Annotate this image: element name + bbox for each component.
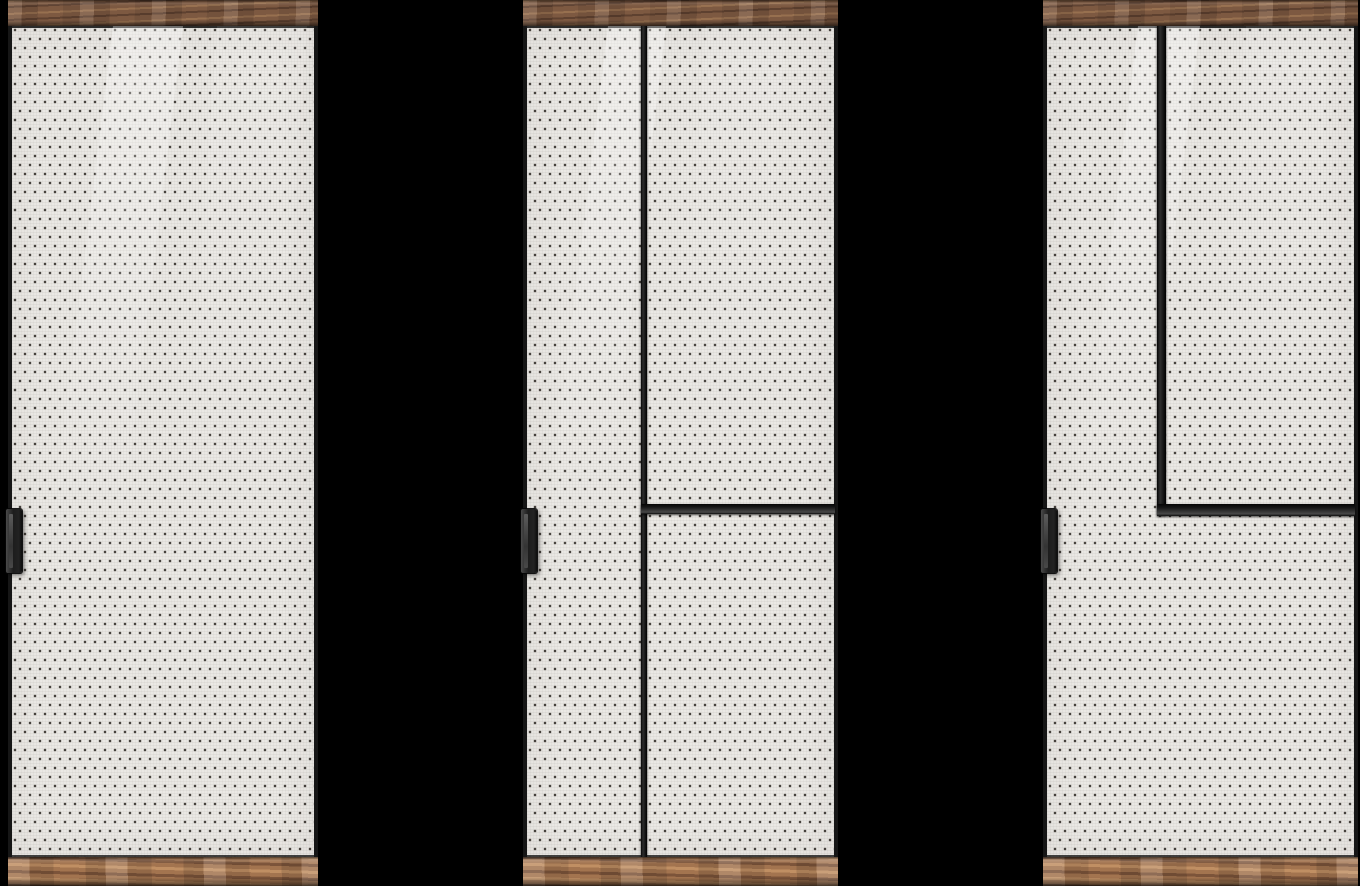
door-variant-3 bbox=[1043, 0, 1358, 886]
render-canvas bbox=[0, 0, 1360, 886]
door1-reflection-soft bbox=[159, 26, 307, 857]
door2-glass-panel bbox=[523, 26, 838, 857]
door3-bottom-wood-rail bbox=[1043, 857, 1358, 886]
door1-glass-panel bbox=[8, 26, 318, 857]
door2-vertical-divider bbox=[641, 26, 647, 857]
door2-top-wood-rail bbox=[523, 0, 838, 26]
door3-top-wood-rail bbox=[1043, 0, 1358, 26]
door3-vertical-divider bbox=[1157, 26, 1166, 516]
door3-horizontal-rail bbox=[1157, 504, 1355, 516]
door2-bottom-wood-rail bbox=[523, 857, 838, 886]
door3-reflection-streak bbox=[1043, 26, 1200, 857]
door3-handle bbox=[1041, 509, 1057, 573]
door-variant-1 bbox=[8, 0, 318, 886]
door1-reflection-streak bbox=[11, 26, 183, 857]
door2-reflection-soft bbox=[648, 26, 786, 857]
door2-horizontal-rail bbox=[641, 504, 835, 514]
door3-glass-panel bbox=[1043, 26, 1358, 857]
door2-handle bbox=[521, 509, 537, 573]
door1-top-wood-rail bbox=[8, 0, 318, 26]
door1-handle bbox=[6, 509, 22, 573]
door-variant-2 bbox=[523, 0, 838, 886]
door1-bottom-wood-rail bbox=[8, 857, 318, 886]
door3-reflection-soft bbox=[1188, 26, 1331, 857]
